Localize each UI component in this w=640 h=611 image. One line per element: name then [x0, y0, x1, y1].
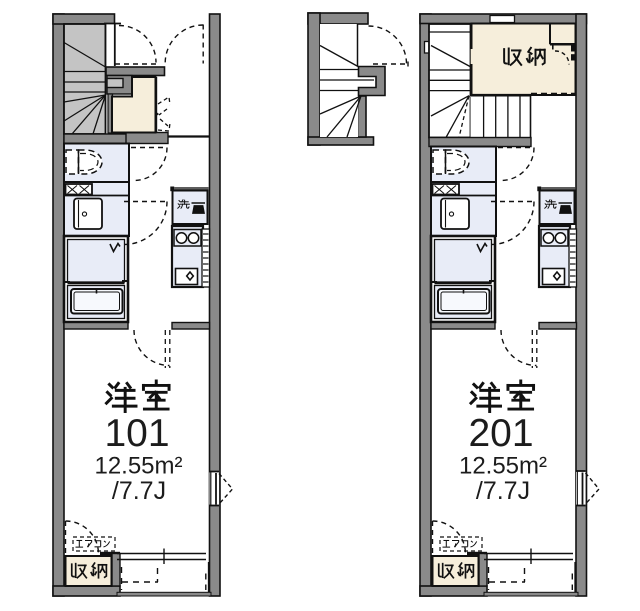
- svg-text:201: 201: [468, 412, 533, 455]
- svg-text:/7.7J: /7.7J: [112, 477, 166, 505]
- svg-text:101: 101: [104, 412, 169, 455]
- svg-text:/7.7J: /7.7J: [476, 477, 530, 505]
- svg-text:12.55m²: 12.55m²: [459, 453, 547, 480]
- svg-text:12.55m²: 12.55m²: [94, 453, 182, 480]
